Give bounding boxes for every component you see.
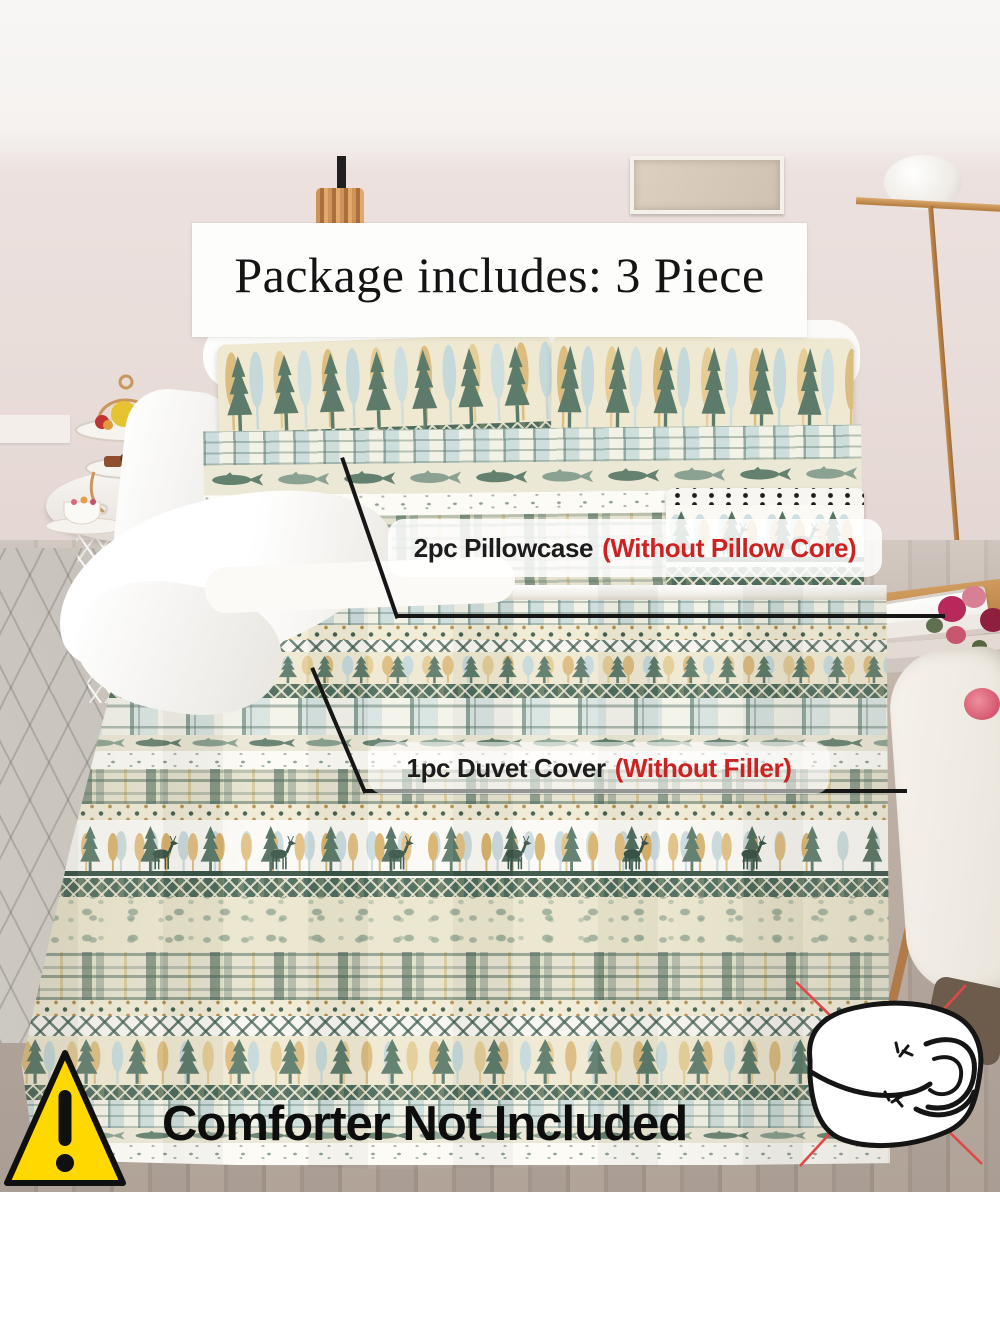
duvet-band-dots [18, 804, 890, 820]
comforter-crossed-out-icon [776, 980, 1000, 1178]
flower-leaf [926, 618, 943, 633]
package-banner-text: Package includes: 3 Piece [234, 246, 764, 304]
duvet-band-dots [18, 1000, 890, 1016]
duvet-band-floral [18, 897, 890, 952]
duvet-band-trees [18, 1036, 890, 1085]
pillowcase-label-note: (Without Pillow Core) [602, 533, 856, 564]
duvet-band-diamond [18, 878, 890, 897]
duvet-band-deer-forest [18, 820, 890, 878]
duvet-label: 1pc Duvet Cover (Without Filler) [368, 742, 830, 794]
pendant-lamp-rod [337, 156, 346, 190]
pink-flower [964, 688, 1000, 720]
duvet-label-item: 1pc Duvet Cover [407, 753, 606, 784]
rose-flower [962, 586, 986, 608]
pillow-band-trees [551, 335, 854, 436]
deer-pillow-dot-band [666, 488, 864, 505]
duvet-label-note: (Without Filler) [615, 753, 792, 784]
disclaimer-text: Comforter Not Included [162, 1096, 687, 1152]
rose-flower [980, 608, 1000, 632]
pillowcase-label: 2pc Pillowcase (Without Pillow Core) [388, 519, 882, 577]
product-screenshot: Package includes: 3 Piece 2pc Pillowcase… [0, 0, 1000, 1333]
warning-triangle-icon [2, 1044, 128, 1190]
pillow-band-trees [216, 333, 553, 433]
rose-flower [946, 626, 966, 644]
pillowcase-label-item: 2pc Pillowcase [414, 533, 593, 564]
pillowcase-leader-line-horizontal [397, 614, 945, 618]
duvet-band-tartan [18, 952, 890, 1000]
duvet-band-chevron [18, 1016, 890, 1036]
picture-frame [630, 156, 784, 214]
package-banner: Package includes: 3 Piece [192, 223, 807, 337]
